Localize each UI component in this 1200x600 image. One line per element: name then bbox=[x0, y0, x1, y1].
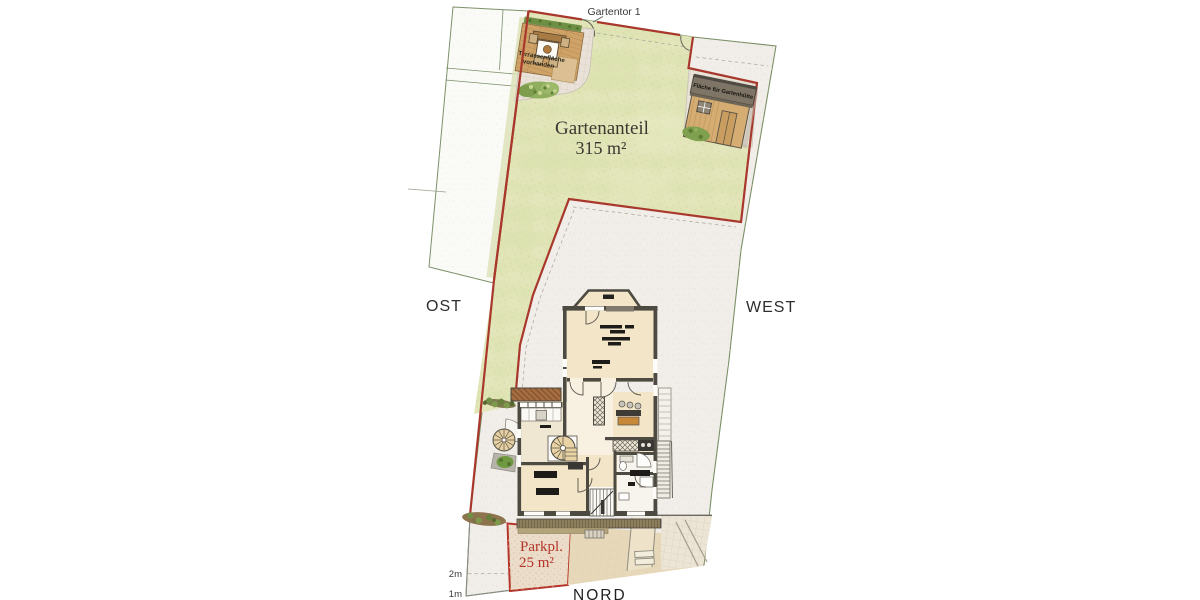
svg-text:2m: 2m bbox=[449, 569, 462, 580]
svg-text:Parkpl.: Parkpl. bbox=[520, 539, 563, 555]
svg-text:NORD: NORD bbox=[573, 587, 627, 600]
svg-text:1m: 1m bbox=[449, 589, 462, 600]
svg-text:OST: OST bbox=[426, 298, 462, 315]
svg-text:25 m²: 25 m² bbox=[519, 555, 554, 571]
svg-text:Gartenanteil: Gartenanteil bbox=[555, 118, 649, 139]
svg-text:315 m²: 315 m² bbox=[576, 138, 627, 158]
svg-text:WEST: WEST bbox=[746, 299, 796, 316]
svg-text:Gartentor 1: Gartentor 1 bbox=[587, 6, 640, 18]
